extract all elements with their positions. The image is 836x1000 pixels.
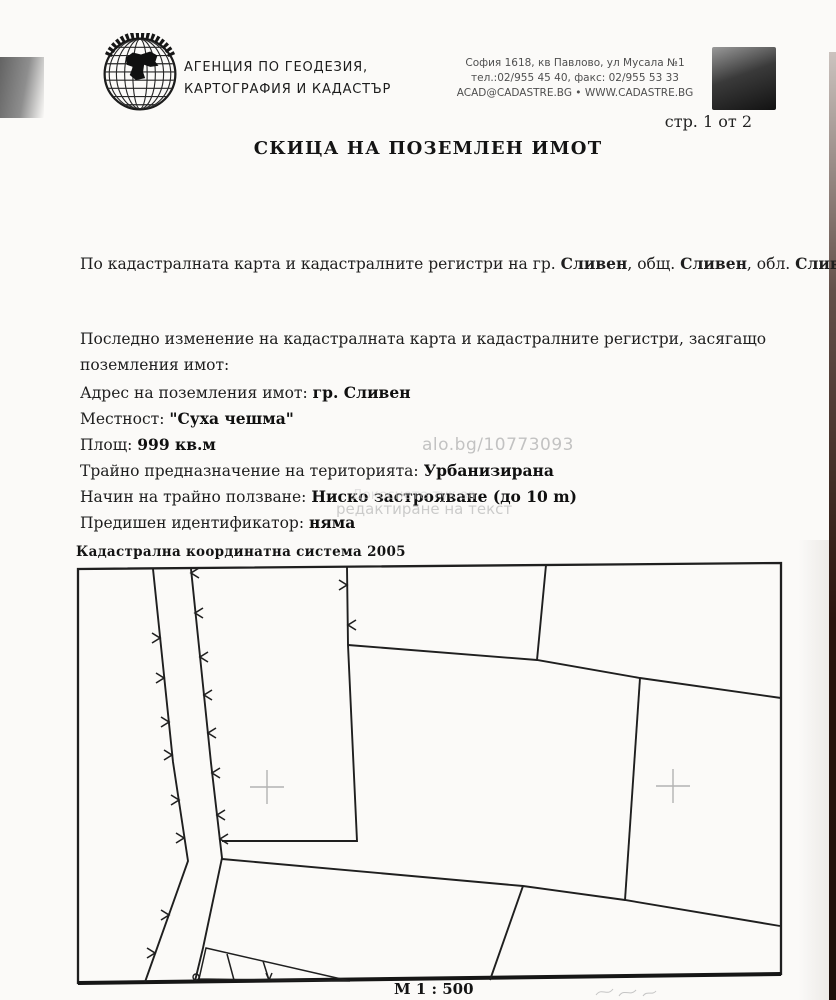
cadastral-map (0, 0, 836, 1000)
middle-vertical-boundary (625, 678, 640, 900)
fence-ticks-right (191, 568, 228, 844)
map-border (78, 563, 781, 983)
map-scale-label: М 1 : 500 (394, 980, 474, 998)
road-edge-left (145, 569, 188, 982)
lower-parcel-boundary (222, 859, 780, 926)
road-edge-right (191, 569, 222, 981)
lower-branch-boundary (490, 886, 523, 980)
grid-cross-left (250, 770, 284, 804)
left-parcel-boundary (222, 567, 357, 841)
scan-artifact-scribble (596, 989, 656, 996)
upper-parcel-boundary (348, 645, 781, 698)
building-strip (199, 948, 350, 981)
grid-cross-right (656, 769, 690, 803)
top-parcel-divider (537, 565, 546, 660)
scanned-document-page: АГЕНЦИЯ ПО ГЕОДЕЗИЯ, КАРТОГРАФИЯ И КАДАС… (0, 0, 836, 1000)
